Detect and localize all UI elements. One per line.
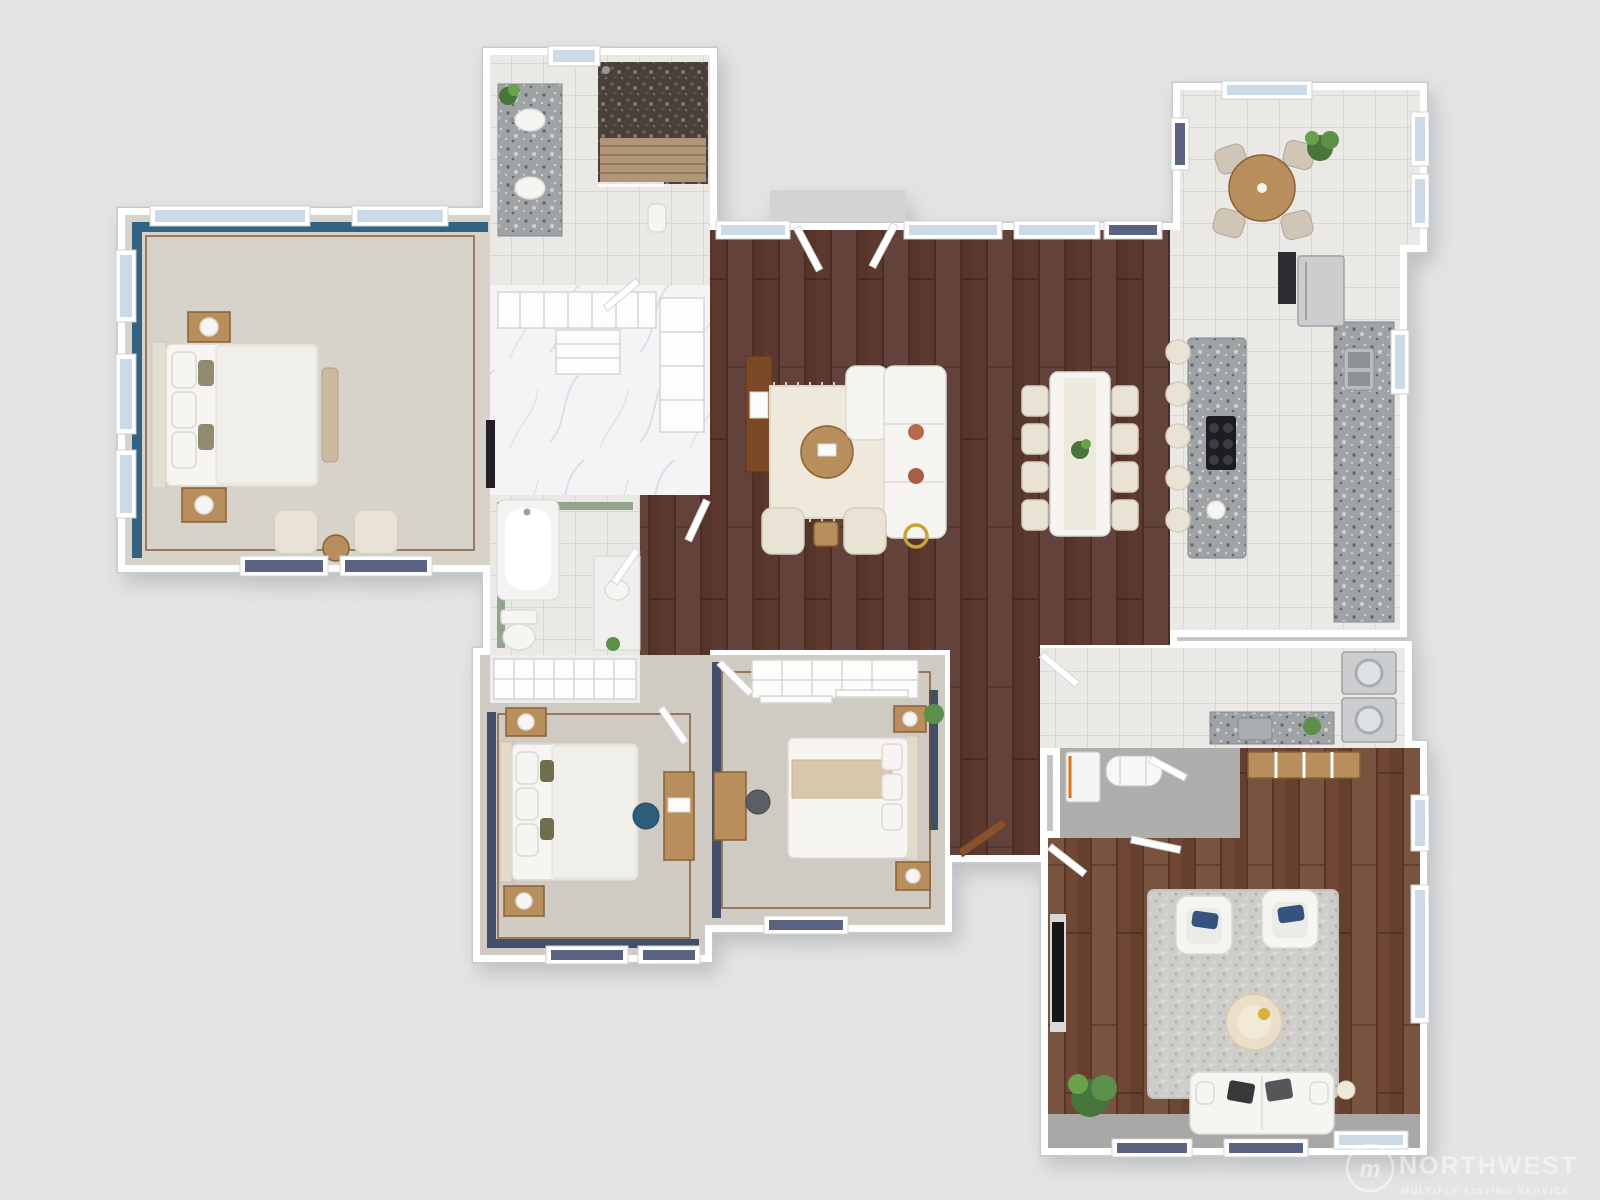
- duvet: [216, 346, 316, 484]
- window: [1411, 795, 1429, 851]
- window: [1224, 1139, 1308, 1157]
- sofa: [1190, 1072, 1334, 1134]
- table-lamp: [903, 712, 917, 726]
- foot-bench: [322, 368, 338, 462]
- dining-chair: [1112, 424, 1138, 454]
- desk-chair: [633, 803, 659, 829]
- screenshot-stage: m NORTHWEST MULTIPLE LISTING SERVICE.: [0, 0, 1600, 1200]
- sink: [515, 109, 545, 131]
- window: [1411, 885, 1429, 1023]
- table-lamp: [200, 318, 218, 336]
- desk-chair: [746, 790, 770, 814]
- pillow: [172, 432, 196, 468]
- washer-door: [1356, 660, 1382, 686]
- sliding-door: [836, 690, 908, 697]
- table-lamp: [516, 893, 532, 909]
- queen-bed: [500, 742, 638, 882]
- shelving-island: [556, 330, 620, 374]
- accent-chair: [844, 508, 886, 554]
- dining-chair: [1022, 424, 1048, 454]
- armchair: [1262, 890, 1318, 948]
- plant: [1303, 717, 1321, 735]
- glass-panel: [598, 182, 664, 187]
- window: [546, 946, 628, 964]
- island-bowl: [1207, 501, 1225, 519]
- bench-cubbies: [1248, 752, 1360, 778]
- king-bed: [152, 342, 338, 488]
- dining-chair: [1112, 500, 1138, 530]
- watermark-brand: NORTHWEST: [1399, 1152, 1578, 1180]
- pillow: [172, 392, 196, 428]
- dining-chair: [1112, 462, 1138, 492]
- pillow: [516, 788, 538, 820]
- window: [1334, 1131, 1408, 1149]
- dryer-door: [1356, 707, 1382, 733]
- desk: [664, 772, 694, 860]
- walk-in-shower: [598, 62, 708, 187]
- terracotta-pillow: [908, 424, 924, 440]
- coffee-table-tray: [818, 444, 836, 456]
- dining-chair: [1022, 462, 1048, 492]
- dining-set: [1022, 372, 1138, 536]
- queen-bed: [788, 736, 918, 860]
- utility-sink: [1238, 718, 1272, 740]
- desk: [714, 772, 746, 840]
- pillow: [882, 774, 902, 800]
- window: [1411, 174, 1429, 228]
- faucet: [510, 118, 515, 123]
- terracotta-pillow: [908, 468, 924, 484]
- side-table: [814, 522, 838, 546]
- dining-chair: [1022, 386, 1048, 416]
- window: [716, 221, 790, 239]
- accent-chair: [762, 508, 804, 554]
- watermark-logo-letter: m: [1359, 1156, 1380, 1183]
- pillow: [516, 824, 538, 856]
- arm-pillow: [1196, 1082, 1214, 1104]
- double-sink-vanity: [498, 84, 562, 236]
- accent-pillow: [540, 818, 554, 840]
- accent-chair: [354, 510, 398, 554]
- window: [150, 206, 310, 226]
- pillow: [882, 744, 902, 770]
- tan-throw: [792, 760, 892, 798]
- laptop: [668, 798, 690, 812]
- arm-pillow: [1310, 1082, 1328, 1104]
- shelving-unit: [498, 292, 656, 328]
- wall-tv: [486, 420, 495, 488]
- shower-bench: [600, 138, 706, 182]
- window: [904, 221, 1002, 239]
- stool: [648, 204, 666, 232]
- window: [1391, 330, 1409, 394]
- pillow: [882, 804, 902, 830]
- accent-pillow: [198, 424, 214, 450]
- window: [1411, 112, 1429, 166]
- floor-lamp: [1337, 1081, 1355, 1099]
- decor-bowl: [1258, 1008, 1270, 1020]
- table-lamp: [195, 496, 213, 514]
- toilet: [501, 610, 537, 650]
- pillow: [516, 752, 538, 784]
- sliding-door: [760, 696, 832, 703]
- accent-pillow: [540, 760, 554, 782]
- window: [1104, 221, 1162, 239]
- window: [548, 46, 600, 66]
- dark-pillow: [1265, 1078, 1294, 1102]
- linen-closet: [494, 659, 636, 699]
- floor-plan-canvas: m NORTHWEST MULTIPLE LISTING SERVICE.: [0, 0, 1600, 1200]
- window: [116, 354, 136, 434]
- vase: [1257, 183, 1267, 193]
- window: [1171, 118, 1189, 170]
- wall-oven: [1278, 252, 1296, 304]
- accent-pillow: [198, 360, 214, 386]
- table-lamp: [906, 869, 920, 883]
- shower-head: [602, 66, 610, 74]
- window: [764, 916, 848, 934]
- fireplace: [1052, 922, 1064, 1022]
- window: [240, 556, 328, 576]
- dining-chair: [1112, 386, 1138, 416]
- window: [352, 206, 448, 226]
- bathtub-basin: [505, 508, 551, 590]
- headboard: [152, 342, 166, 488]
- watermark-subtitle: MULTIPLE LISTING SERVICE.: [1401, 1186, 1575, 1197]
- accent-chair: [274, 510, 318, 554]
- bar-stool: [1166, 508, 1190, 532]
- window: [116, 450, 136, 518]
- bar-stool: [1166, 382, 1190, 406]
- centerpiece-plant-leaf: [1081, 439, 1091, 449]
- window: [1222, 81, 1312, 99]
- plant: [924, 704, 944, 724]
- window: [1014, 221, 1100, 239]
- sink: [515, 177, 545, 199]
- table-lamp: [518, 714, 534, 730]
- bar-stool: [1166, 424, 1190, 448]
- shelving-unit: [660, 298, 704, 432]
- dining-chair: [1022, 500, 1048, 530]
- closet-shelving: [752, 660, 918, 703]
- faucet: [510, 186, 515, 191]
- window: [1112, 1139, 1192, 1157]
- pillow: [172, 352, 196, 388]
- refrigerator: [1298, 256, 1344, 326]
- armchair: [1176, 896, 1232, 954]
- tv-console-screen: [750, 392, 768, 418]
- tub-faucet: [524, 509, 531, 516]
- window: [638, 946, 700, 964]
- plant: [606, 637, 620, 651]
- chaise: [846, 366, 888, 440]
- bar-stool: [1166, 466, 1190, 490]
- bar-stool: [1166, 340, 1190, 364]
- vanity: [594, 556, 640, 650]
- window: [116, 250, 136, 322]
- window: [340, 556, 432, 576]
